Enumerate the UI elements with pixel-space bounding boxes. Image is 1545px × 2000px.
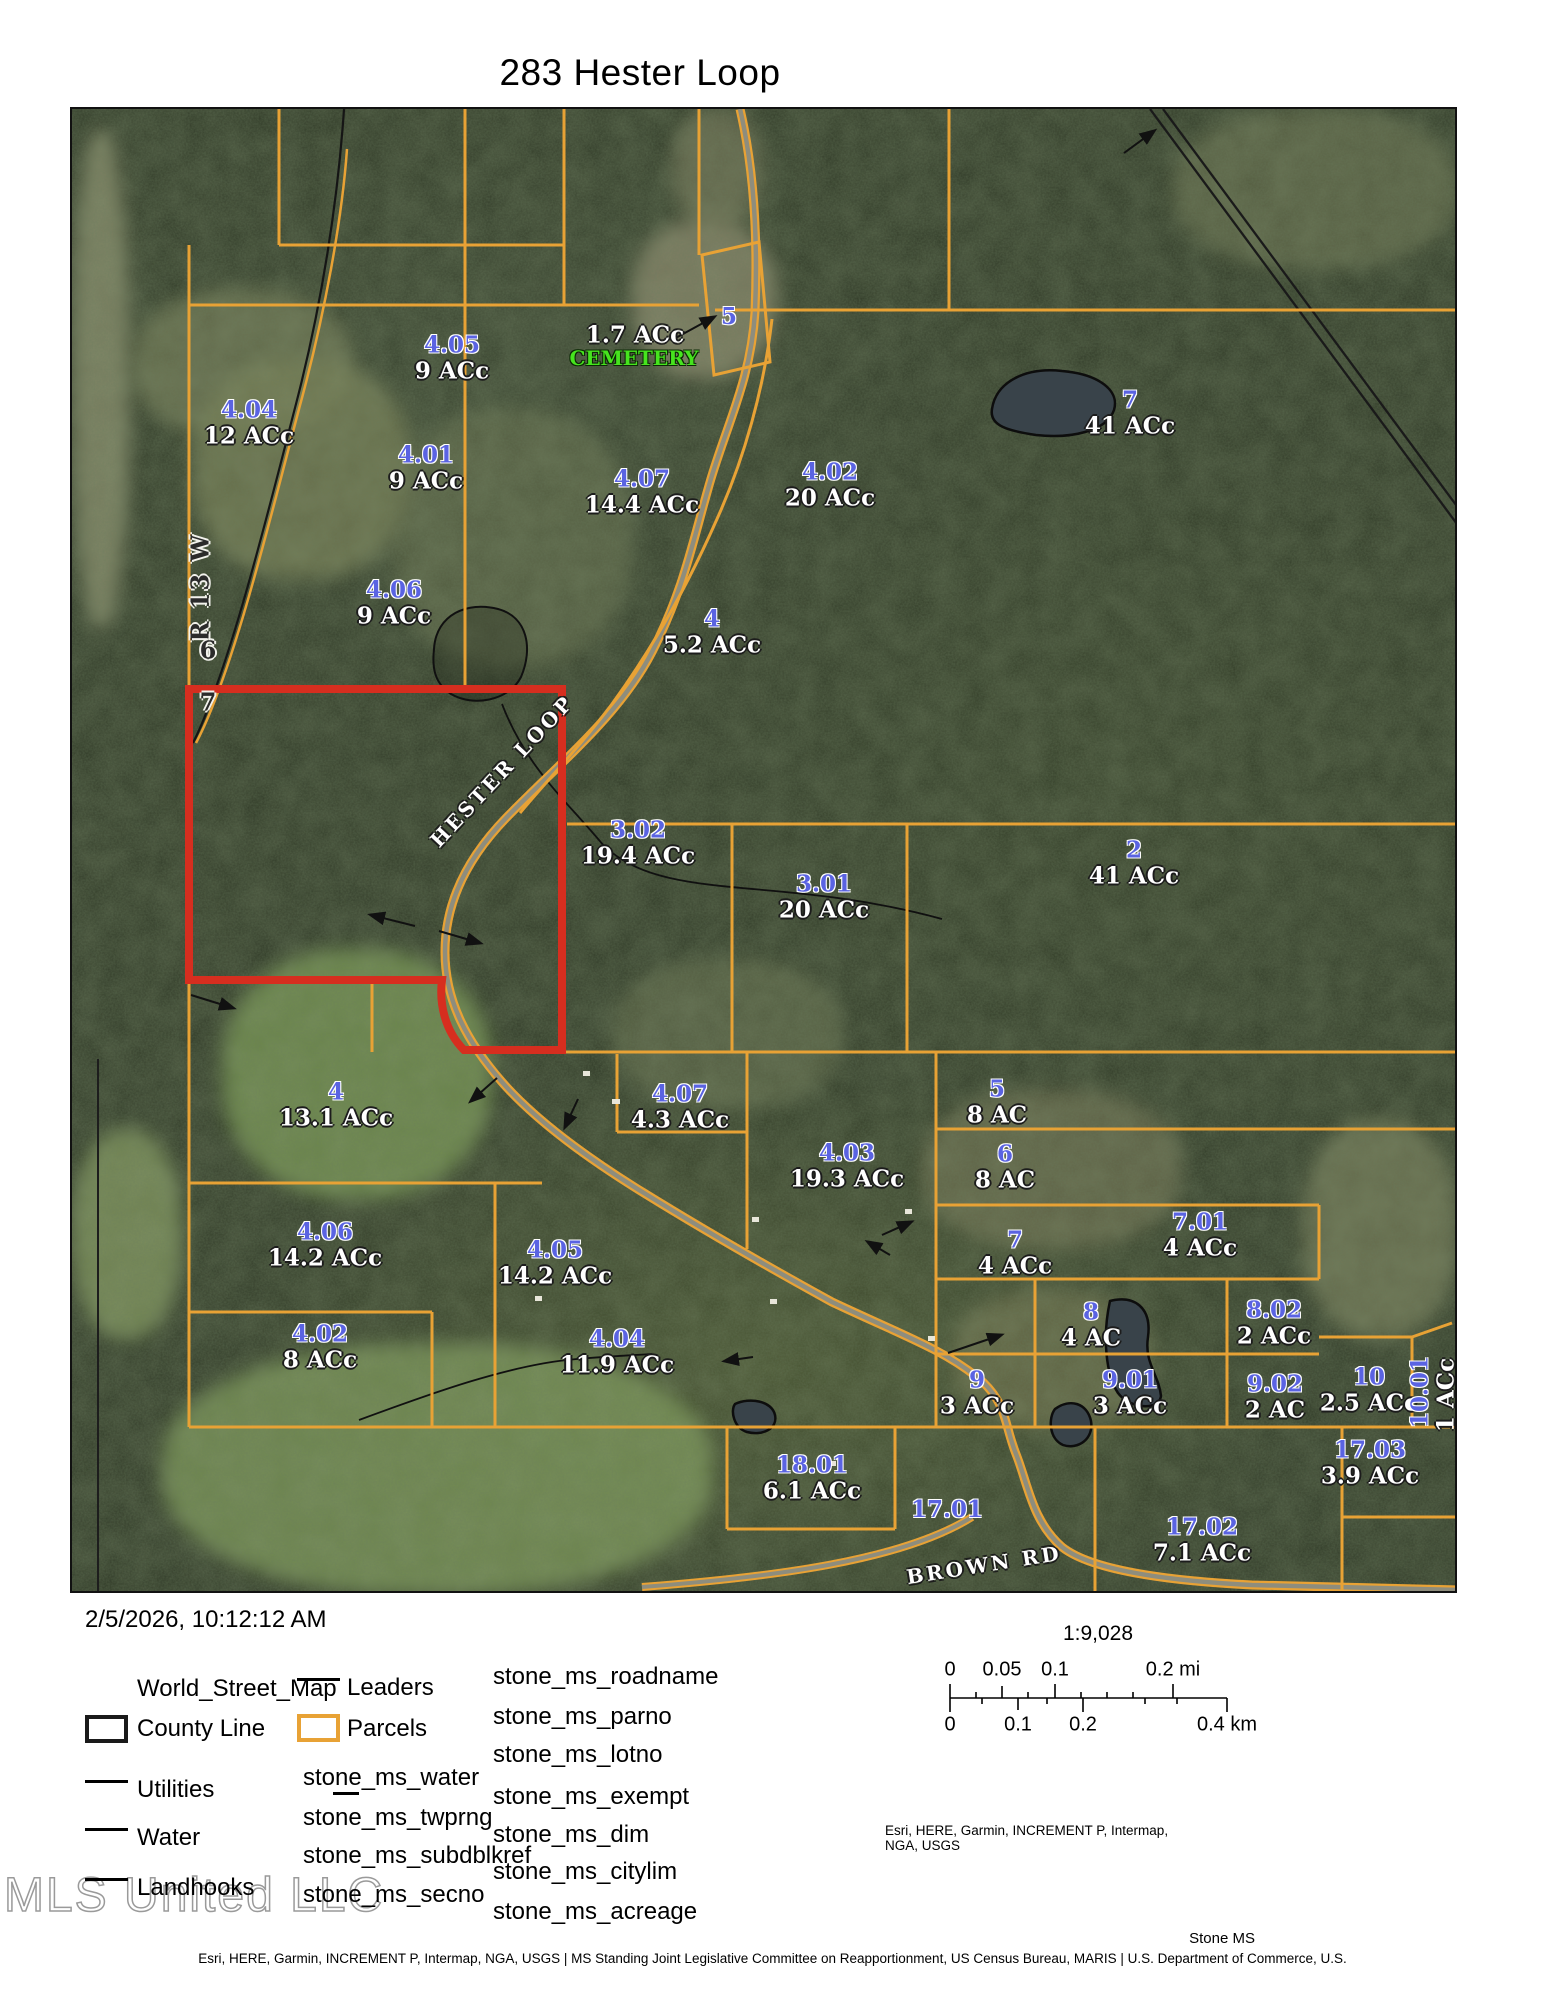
parcel-label: 4.0614.2 ACc	[268, 1220, 382, 1273]
parcel-label: 241 ACc	[1089, 838, 1179, 891]
parcel-label: 45.2 ACc	[663, 607, 761, 660]
scale-tick-label: 0.05	[983, 1659, 1022, 1682]
parcel-label: 7.014 ACc	[1163, 1210, 1237, 1263]
map-text-label: 1.7 ACc	[586, 322, 684, 349]
parcel-label: 4.059 ACc	[415, 333, 489, 386]
parcel-label: 3.0219.4 ACc	[581, 818, 695, 871]
parcel-label: 4.0514.2 ACc	[498, 1238, 612, 1291]
scale-bar: 00.050.10.2 mi 00.10.20.4 km	[880, 1620, 1300, 1750]
scale-tick-label: 0.1	[1004, 1714, 1032, 1737]
parcel-label: 68 AC	[975, 1142, 1035, 1195]
parcel-label: 74 ACc	[978, 1228, 1052, 1281]
corner-credit: Stone MS	[1120, 1930, 1255, 1947]
legend-item: stone_ms_twprng	[303, 1804, 492, 1832]
legend-item: stone_ms_dim	[493, 1821, 649, 1849]
map-canvas: 4.059 ACc4.0412 ACc4.019 ACc54.0714.4 AC…	[70, 107, 1457, 1593]
page-title: 283 Hester Loop	[280, 52, 1000, 94]
legend-item: Landhooks	[137, 1874, 254, 1902]
scale-tick-label: 0	[944, 1714, 955, 1737]
map-text-label: R 13 W	[186, 532, 215, 641]
map-text-label: 10.01	[1407, 1356, 1434, 1428]
legend-item: County Line	[137, 1715, 265, 1743]
legend-item: Parcels	[347, 1715, 427, 1743]
parcel-label: 4.0411.9 ACc	[560, 1327, 674, 1380]
parcel-label: 4.0714.4 ACc	[585, 467, 699, 520]
parcel-label: 3.0120 ACc	[779, 872, 869, 925]
road-name-label: HESTER LOOP	[425, 690, 578, 852]
parcel-label: 8.022 ACc	[1237, 1298, 1311, 1351]
parcel-label: 9.013 ACc	[1093, 1368, 1167, 1421]
parcel-label: 4.0412 ACc	[204, 398, 294, 451]
parcel-label: 84 AC	[1061, 1300, 1121, 1353]
legend-item: stone_ms_parno	[493, 1703, 672, 1731]
esri-credit: Esri, HERE, Garmin, INCREMENT P, Interma…	[885, 1823, 1185, 1853]
map-text-label: 7	[200, 688, 219, 717]
map-report-page: 283 Hester Loop	[0, 0, 1545, 2000]
parcel-label: 58 AC	[967, 1077, 1027, 1130]
parcel-label: 17.033.9 ACc	[1321, 1438, 1419, 1491]
parcel-label: 5	[721, 304, 737, 330]
parcel-label: 4.069 ACc	[357, 578, 431, 631]
parcel-label: 4.019 ACc	[389, 443, 463, 496]
parcel-label: 413.1 ACc	[279, 1080, 393, 1133]
legend-swatch-line	[297, 1678, 340, 1681]
map-text-label: 1 ACc	[1433, 1358, 1458, 1432]
parcel-label: 102.5 ACc	[1320, 1365, 1418, 1418]
legend-item: stone_ms_citylim	[493, 1858, 677, 1886]
parcel-label: 18.016.1 ACc	[763, 1453, 861, 1506]
legend-item: stone_ms_lotno	[493, 1741, 662, 1769]
parcel-label: 4.028 ACc	[283, 1322, 357, 1375]
legend-item: stone_ms_roadname	[493, 1663, 718, 1691]
legend-swatch-rect-orange	[297, 1714, 340, 1742]
parcel-label: 4.0319.3 ACc	[790, 1141, 904, 1194]
map-text-label: CEMETERY	[570, 346, 699, 370]
scale-tick-label: 0.2	[1069, 1714, 1097, 1737]
parcel-label: 9.022 AC	[1245, 1372, 1305, 1425]
footer-attribution: Esri, HERE, Garmin, INCREMENT P, Interma…	[100, 1951, 1445, 1966]
legend-item: Leaders	[347, 1674, 434, 1702]
legend-swatch-rect-black	[85, 1715, 128, 1743]
legend-swatch-line	[85, 1878, 128, 1881]
map-text-label: 6	[200, 636, 219, 665]
legend-item: Utilities	[137, 1776, 214, 1804]
legend-item: stone_ms_secno	[303, 1881, 484, 1909]
scale-tick-label: 0	[944, 1659, 955, 1682]
parcel-label: 741 ACc	[1085, 388, 1175, 441]
map-label-layer: 4.059 ACc4.0412 ACc4.019 ACc54.0714.4 AC…	[72, 109, 1455, 1591]
legend-swatch-line	[85, 1780, 128, 1783]
legend-swatch-underline	[333, 1792, 359, 1795]
parcel-label: 17.01	[911, 1497, 983, 1523]
legend-item: stone_ms_acreage	[493, 1898, 697, 1926]
parcel-label: 4.0220 ACc	[785, 460, 875, 513]
scale-tick-label: 0.4 km	[1197, 1714, 1257, 1737]
scale-tick-label: 0.2 mi	[1146, 1659, 1200, 1682]
legend-swatch-line	[85, 1828, 128, 1831]
legend-item: stone_ms_water	[303, 1764, 479, 1792]
legend-item: Water	[137, 1824, 200, 1852]
road-name-label: BROWN RD	[905, 1541, 1063, 1589]
parcel-label: 17.027.1 ACc	[1153, 1515, 1251, 1568]
parcel-label: 4.074.3 ACc	[631, 1082, 729, 1135]
legend-item: stone_ms_exempt	[493, 1783, 689, 1811]
map-timestamp: 2/5/2026, 10:12:12 AM	[85, 1606, 327, 1634]
scale-tick-label: 0.1	[1041, 1659, 1069, 1682]
parcel-label: 93 ACc	[940, 1368, 1014, 1421]
